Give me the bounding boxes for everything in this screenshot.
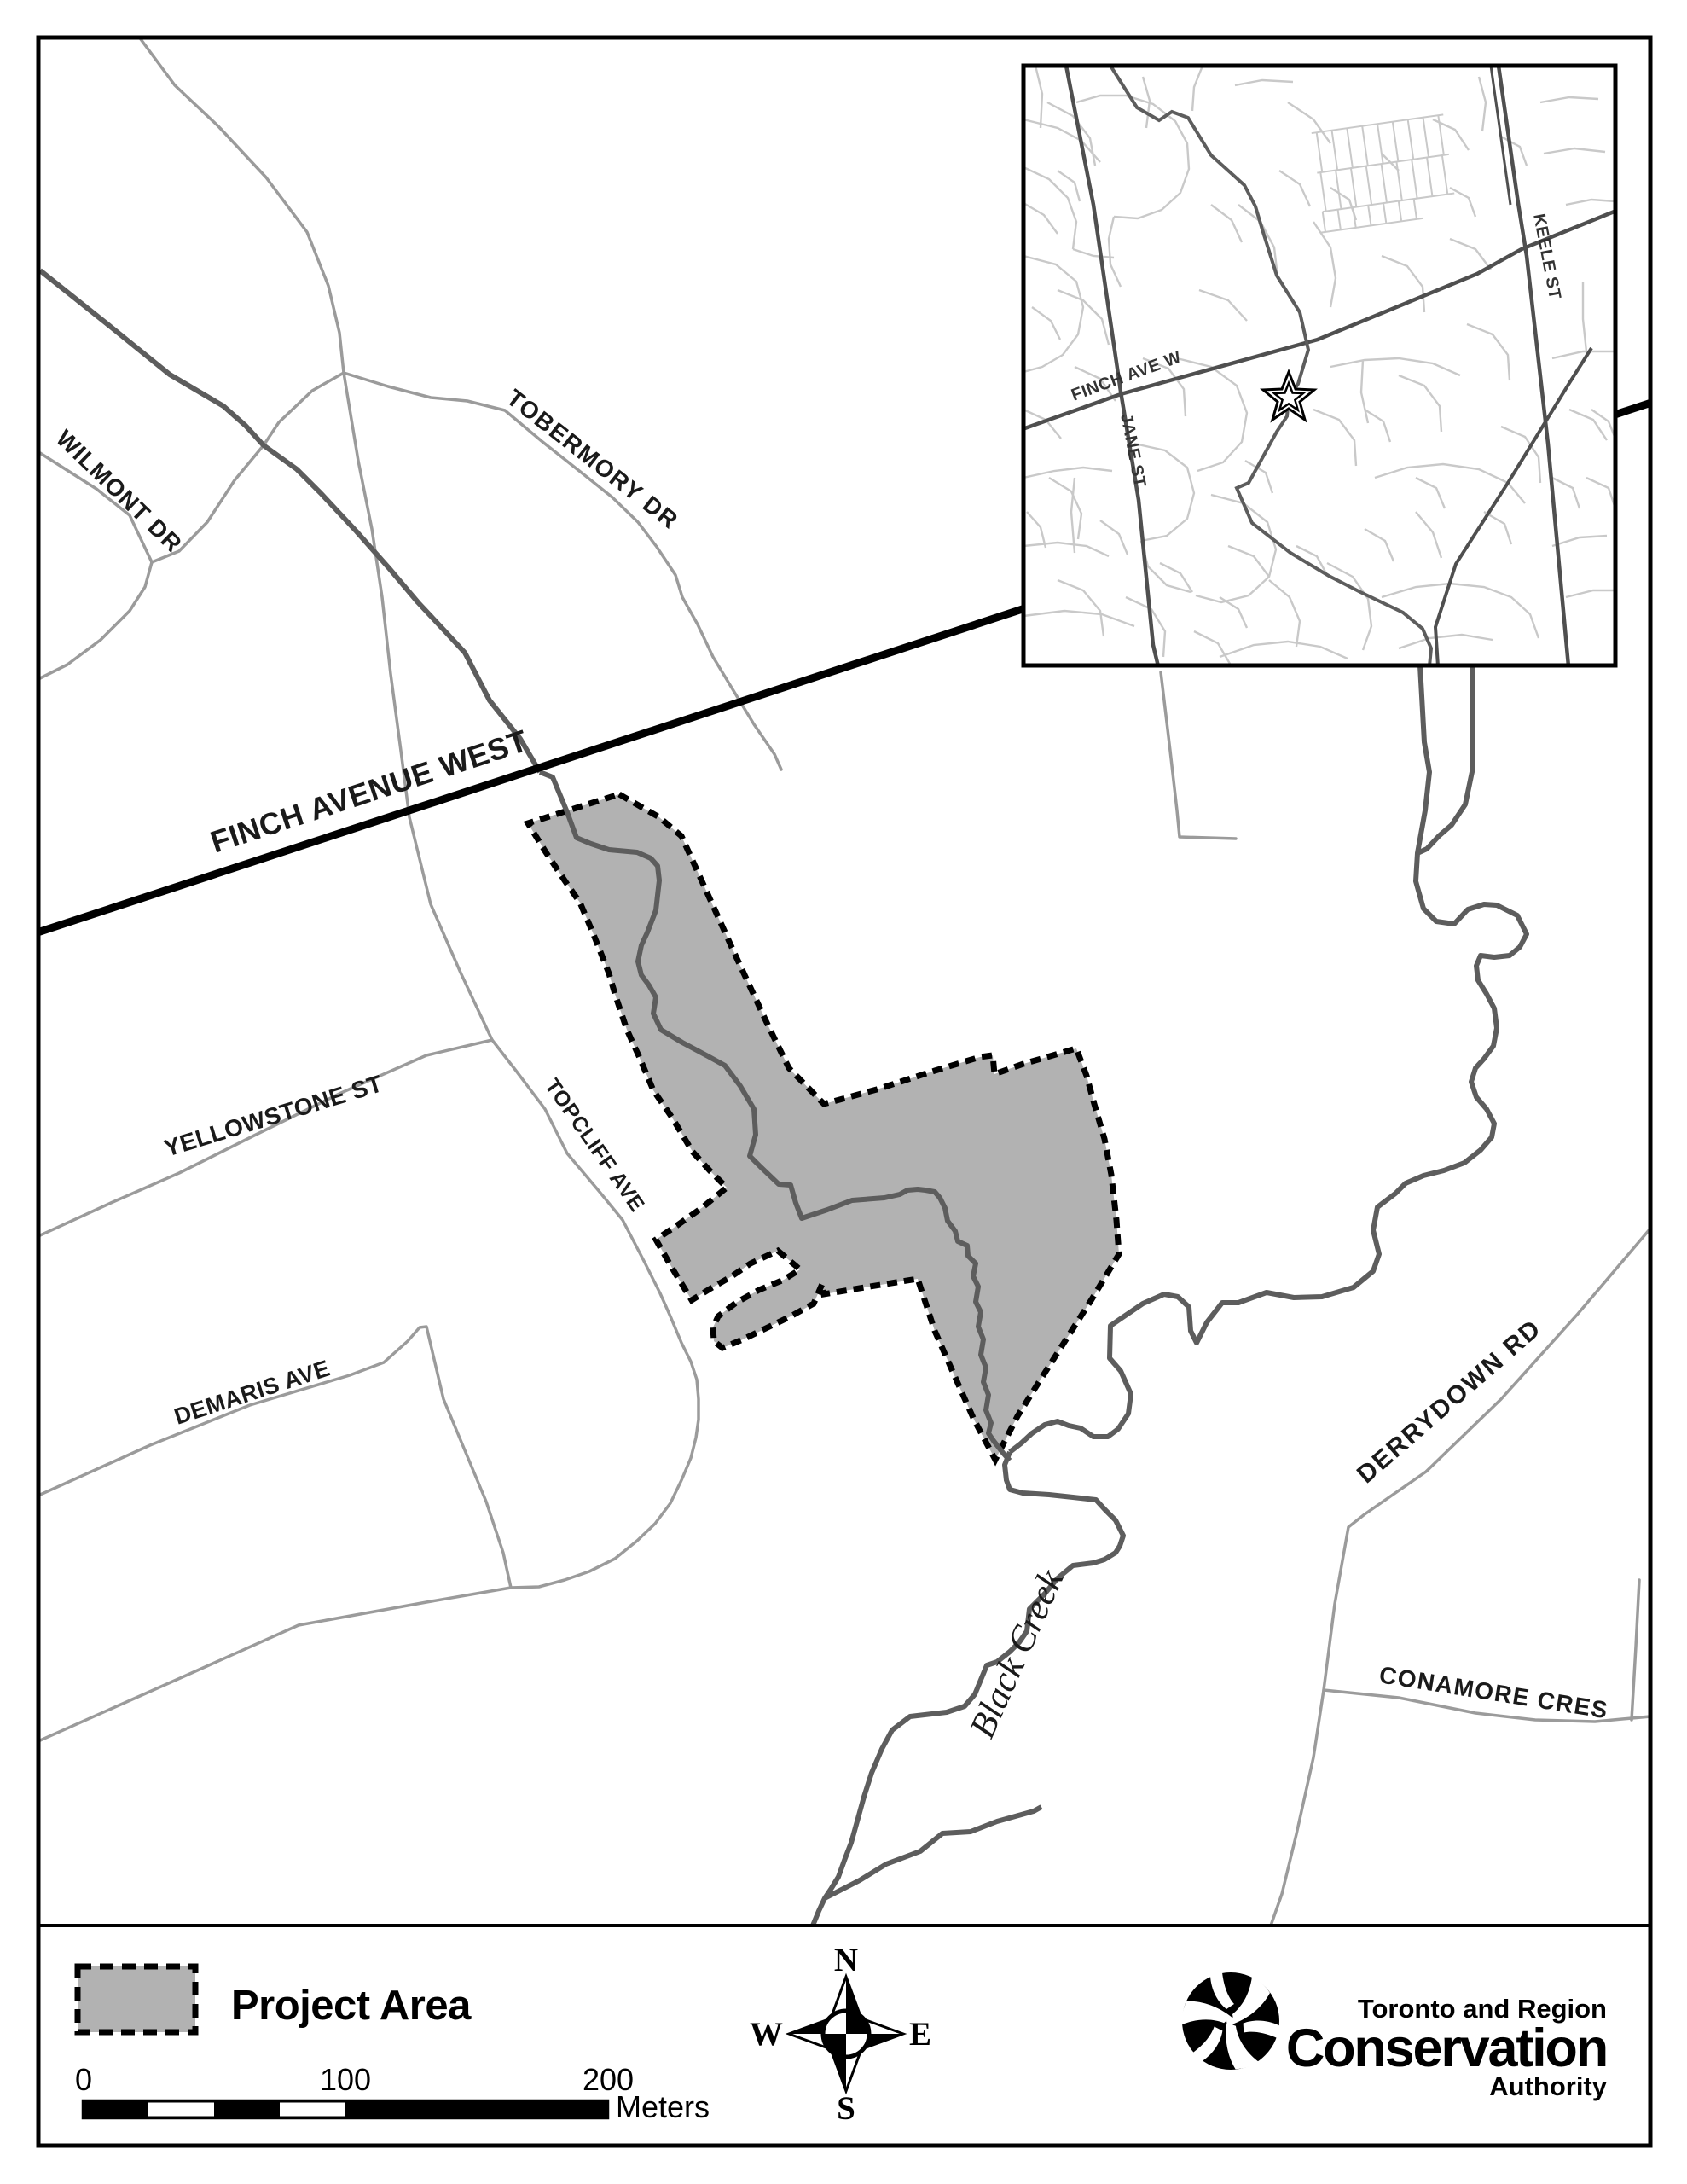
svg-text:Authority: Authority: [1489, 2071, 1608, 2101]
svg-text:S: S: [837, 2090, 855, 2127]
svg-text:Conservation: Conservation: [1286, 2018, 1607, 2078]
svg-text:Meters: Meters: [616, 2089, 710, 2124]
svg-text:N: N: [834, 1942, 858, 1978]
svg-text:Project Area: Project Area: [231, 1983, 472, 2029]
svg-text:E: E: [909, 2016, 931, 2053]
svg-text:0: 0: [75, 2062, 92, 2097]
svg-text:100: 100: [320, 2062, 371, 2097]
svg-text:W: W: [750, 2016, 783, 2053]
